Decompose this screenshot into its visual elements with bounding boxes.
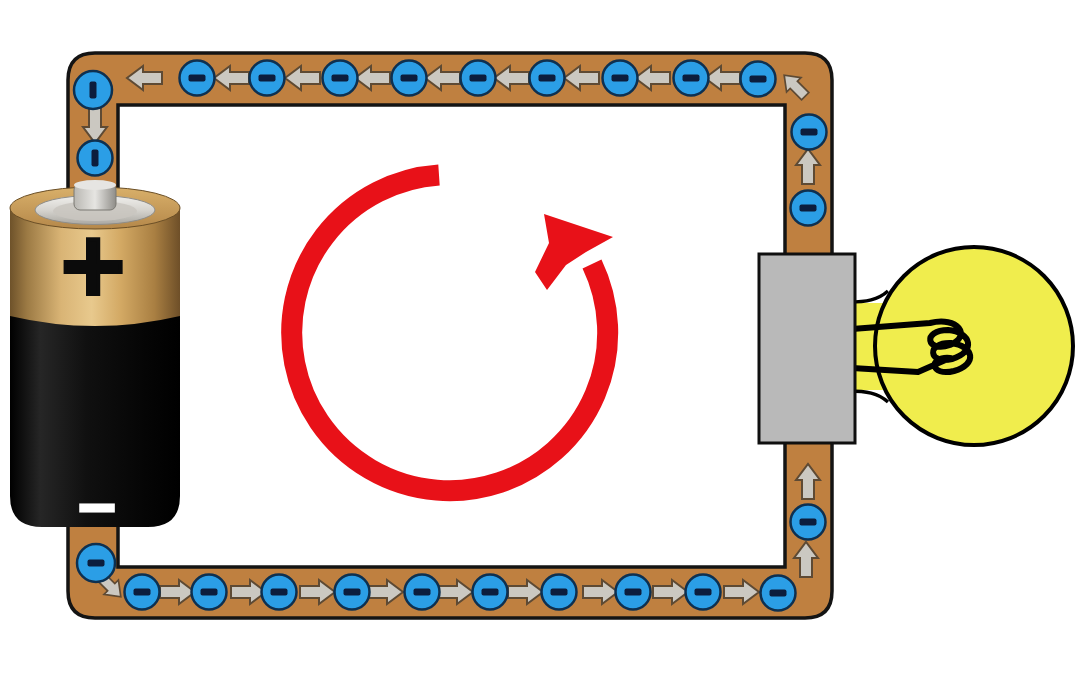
bulb-globe xyxy=(875,247,1073,445)
electron-minus-symbol xyxy=(414,589,431,596)
electron xyxy=(192,575,227,610)
battery-terminal-nub-top xyxy=(74,180,116,190)
electron xyxy=(78,141,113,176)
electron-minus-symbol xyxy=(344,589,361,596)
electron xyxy=(125,575,160,610)
electron-flow xyxy=(74,61,827,611)
diagram-canvas: + − xyxy=(0,0,1080,675)
electron-minus-symbol xyxy=(612,75,629,82)
electron xyxy=(392,61,427,96)
battery-positive-label: + xyxy=(56,212,130,315)
electron xyxy=(262,575,297,610)
electron-minus-symbol xyxy=(800,205,817,212)
electron-minus-symbol xyxy=(401,75,418,82)
electron-minus-symbol xyxy=(770,590,787,597)
electron-minus-symbol xyxy=(470,75,487,82)
electron-minus-symbol xyxy=(189,75,206,82)
battery-negative-label: − xyxy=(75,476,119,536)
electron xyxy=(405,575,440,610)
electron xyxy=(461,61,496,96)
electron xyxy=(74,71,112,109)
electron xyxy=(761,576,796,611)
electron xyxy=(603,61,638,96)
electron xyxy=(741,62,776,97)
electron-minus-symbol xyxy=(551,589,568,596)
electron xyxy=(792,115,827,150)
circuit-diagram: + − xyxy=(0,0,1080,675)
electron-minus-symbol xyxy=(800,519,817,526)
electron xyxy=(77,544,115,582)
electron xyxy=(686,575,721,610)
electron xyxy=(616,575,651,610)
electron xyxy=(542,575,577,610)
electron-minus-symbol xyxy=(482,589,499,596)
bulb-base xyxy=(759,254,855,443)
electron xyxy=(473,575,508,610)
electron xyxy=(791,191,826,226)
current-direction-arrow xyxy=(292,175,613,491)
electron xyxy=(250,61,285,96)
electron-minus-symbol xyxy=(625,589,642,596)
wire-loop xyxy=(68,53,832,618)
electron xyxy=(323,61,358,96)
electron-minus-symbol xyxy=(134,589,151,596)
electron xyxy=(180,61,215,96)
electron-minus-symbol xyxy=(92,150,99,167)
electron-minus-symbol xyxy=(90,82,97,99)
electron-minus-symbol xyxy=(259,75,276,82)
electron xyxy=(791,505,826,540)
light-bulb xyxy=(759,247,1073,445)
electron-minus-symbol xyxy=(201,589,218,596)
electron-minus-symbol xyxy=(332,75,349,82)
electron xyxy=(335,575,370,610)
electron-minus-symbol xyxy=(683,75,700,82)
electron-minus-symbol xyxy=(539,75,556,82)
battery: + − xyxy=(10,180,180,536)
electron-minus-symbol xyxy=(88,560,105,567)
electron-minus-symbol xyxy=(271,589,288,596)
electron xyxy=(530,61,565,96)
electron-minus-symbol xyxy=(801,129,818,136)
electron-minus-symbol xyxy=(695,589,712,596)
electron-minus-symbol xyxy=(750,76,767,83)
electron xyxy=(674,61,709,96)
